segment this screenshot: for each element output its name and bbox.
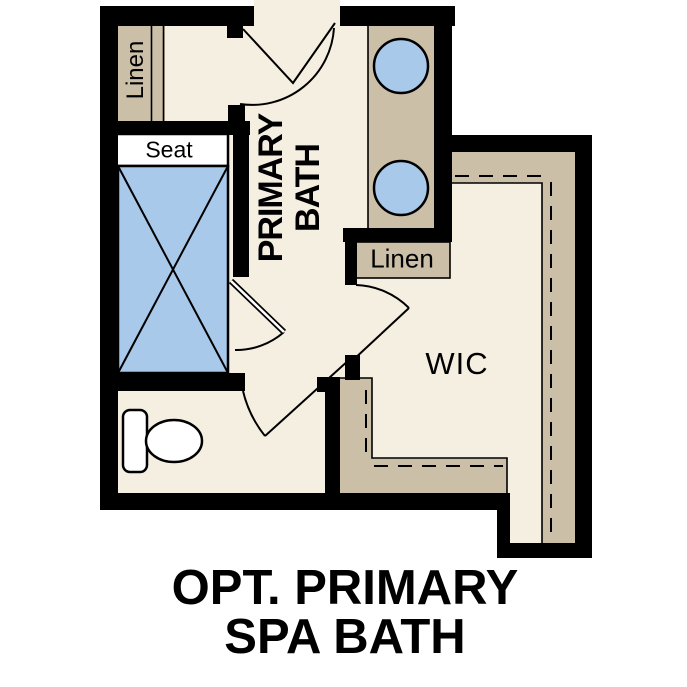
linen-closet-label: Linen [122, 41, 150, 100]
wall [345, 228, 357, 285]
wall [228, 105, 245, 135]
wall [100, 373, 245, 391]
primary-bath-label-line1: PRIMARY [253, 114, 290, 263]
primary-bath-room-label: PRIMARY BATH [253, 114, 327, 263]
plan-title-line2: SPA BATH [172, 613, 519, 662]
wall [325, 377, 340, 493]
floor-plan: Linen Seat PRIMARY BATH Linen WIC OPT. P… [0, 0, 687, 687]
wall [343, 228, 452, 242]
plan-title-line1: OPT. PRIMARY [172, 564, 519, 613]
wall [100, 6, 254, 26]
wall [345, 355, 360, 380]
wic-room-label: WIC [425, 346, 488, 382]
entry-floor [254, 0, 340, 12]
shower-seat-label: Seat [145, 137, 192, 164]
sink [374, 161, 428, 215]
toilet-tank [123, 410, 147, 472]
wic-shelf-right-band [542, 152, 575, 543]
sink [374, 39, 428, 93]
wall [497, 493, 510, 550]
wall [100, 121, 250, 135]
linen-cabinet-label: Linen [370, 244, 434, 275]
wall [233, 135, 249, 277]
wall [434, 135, 592, 152]
wall [100, 6, 118, 510]
plan-title: OPT. PRIMARY SPA BATH [172, 564, 519, 662]
wall [434, 6, 452, 242]
wall [100, 493, 510, 510]
wall [497, 543, 592, 558]
wic-counter-horizontal [340, 458, 507, 493]
wall [227, 26, 243, 38]
wall [575, 135, 592, 558]
primary-bath-label-line2: BATH [290, 114, 327, 263]
toilet-bowl [146, 420, 202, 462]
